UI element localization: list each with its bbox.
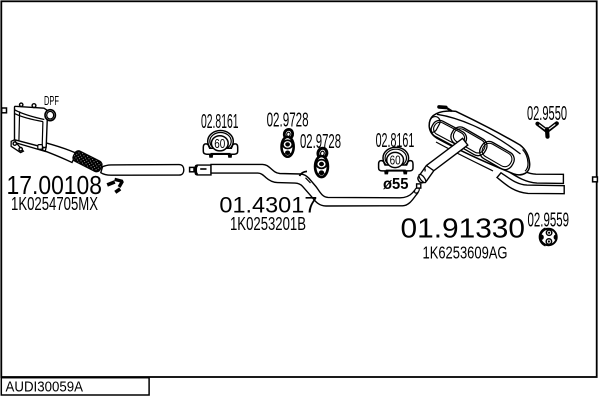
svg-text:ø55: ø55 xyxy=(383,176,409,193)
svg-text:1K0254705MX: 1K0254705MX xyxy=(11,194,98,214)
svg-text:1K6253609AG: 1K6253609AG xyxy=(423,243,508,263)
svg-text:02.9728: 02.9728 xyxy=(267,109,309,132)
svg-text:02.8161: 02.8161 xyxy=(376,129,415,152)
svg-text:1K0253201B: 1K0253201B xyxy=(230,214,306,234)
svg-text:01.91330: 01.91330 xyxy=(401,212,526,243)
svg-text:DPF: DPF xyxy=(44,94,59,108)
svg-text:02.9728: 02.9728 xyxy=(300,130,341,153)
svg-text:AUDI30059A: AUDI30059A xyxy=(6,380,84,396)
svg-text:02.8161: 02.8161 xyxy=(201,110,239,133)
svg-text:02.9550: 02.9550 xyxy=(527,102,567,125)
